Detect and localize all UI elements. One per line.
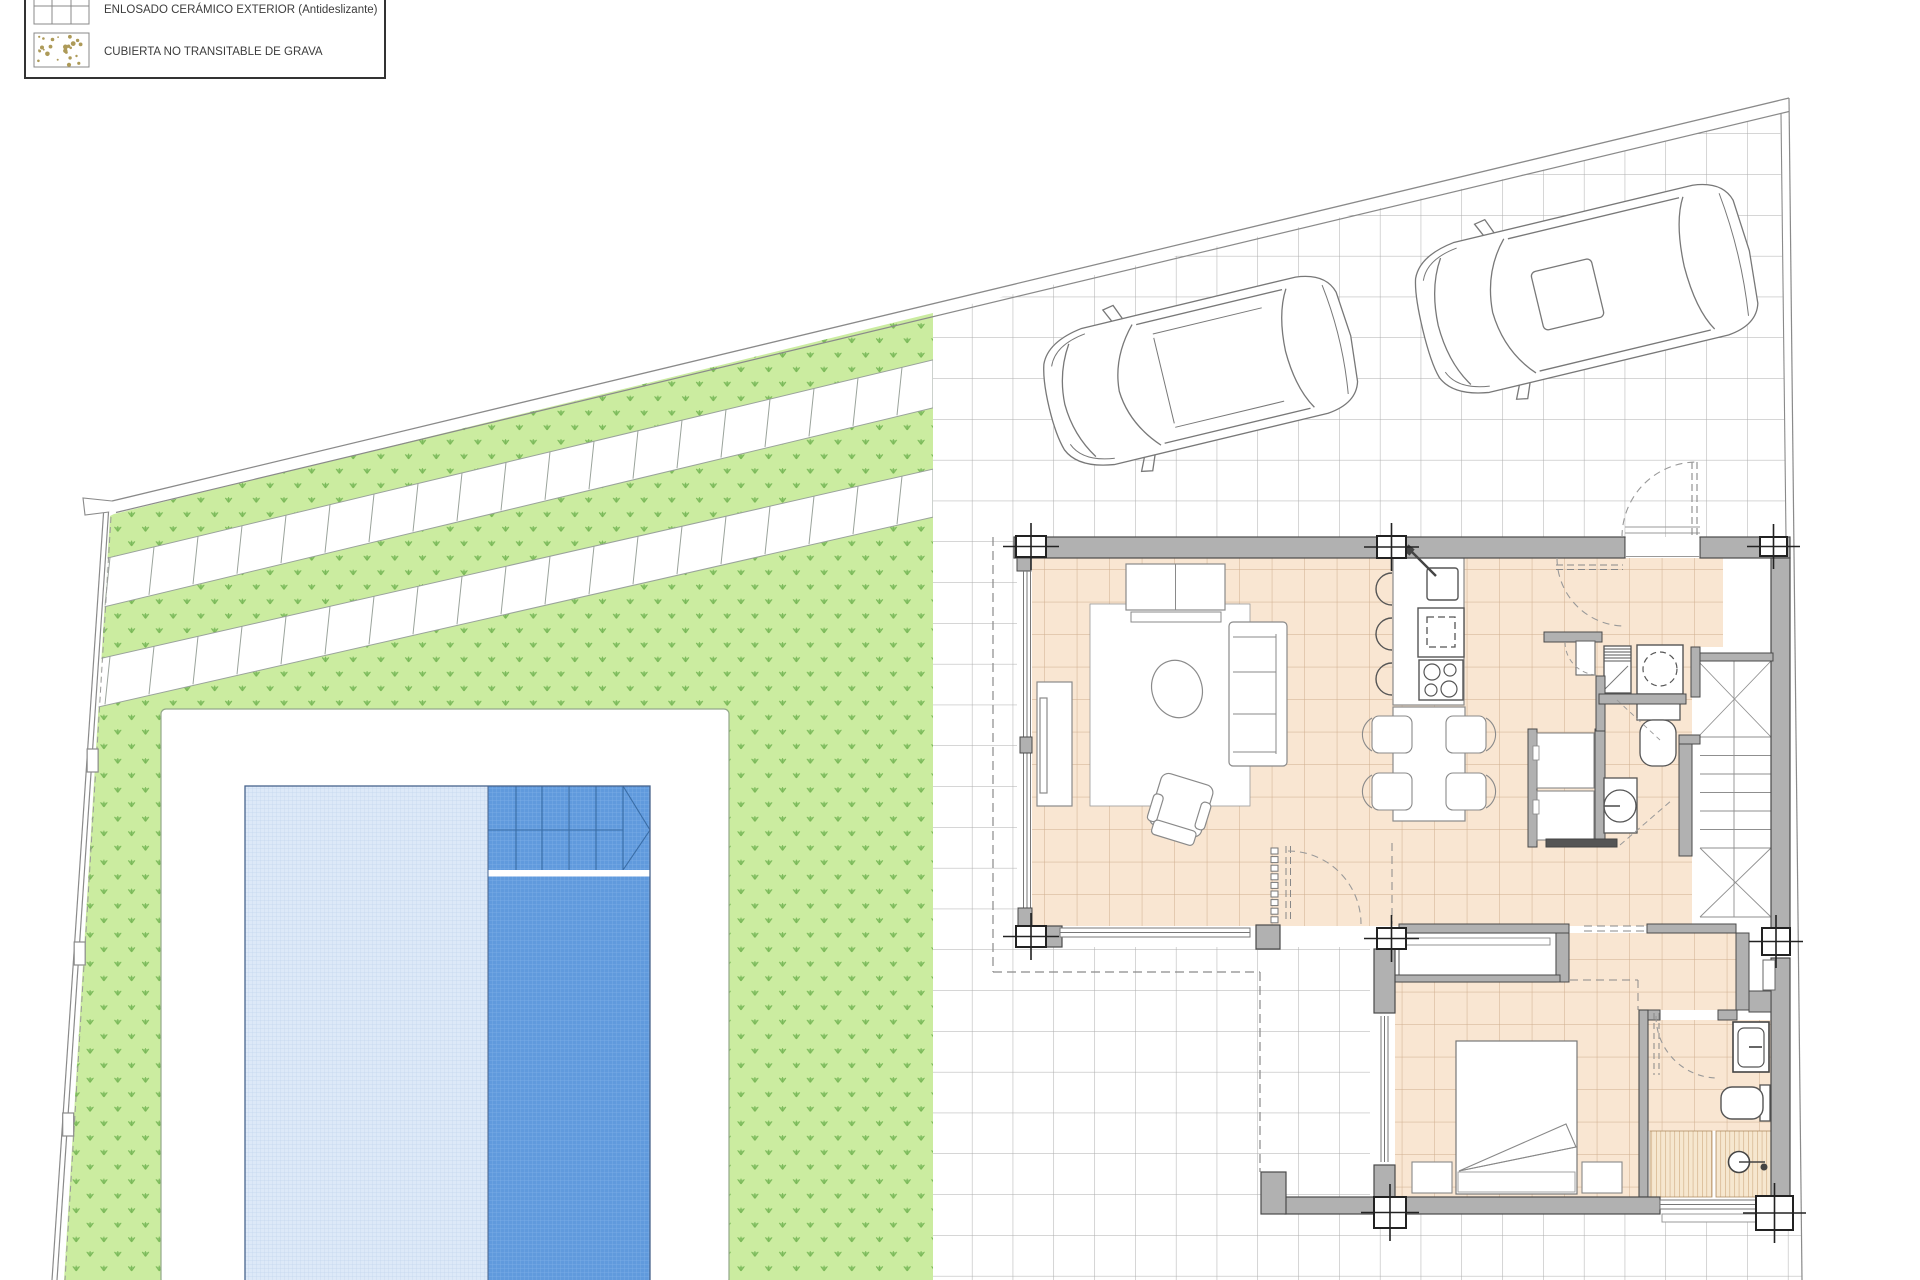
svg-text:ENLOSADO CERÁMICO EXTERIOR (An: ENLOSADO CERÁMICO EXTERIOR (Antideslizan…	[104, 3, 378, 16]
svg-text:CUBIERTA NO TRANSITABLE DE GRA: CUBIERTA NO TRANSITABLE DE GRAVA	[104, 46, 323, 58]
